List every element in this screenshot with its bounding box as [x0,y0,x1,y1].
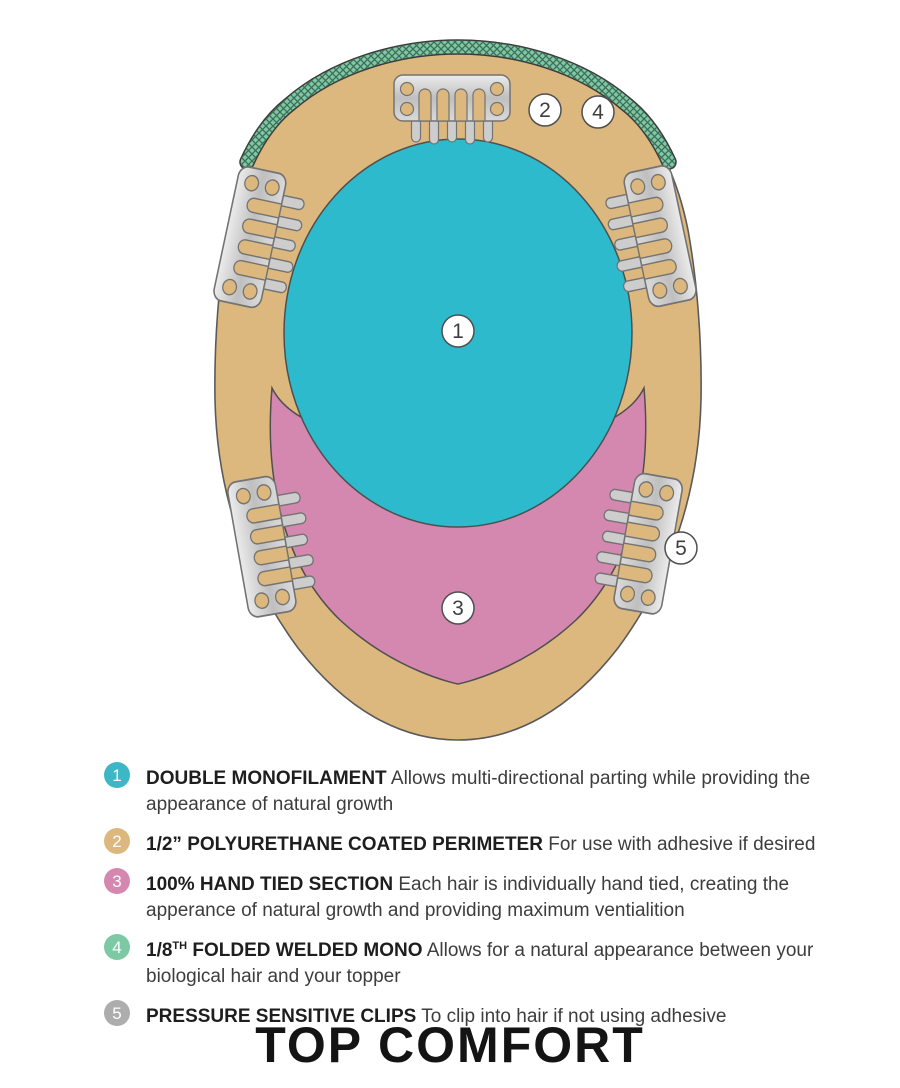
legend-text: 1/8TH FOLDED WELDED MONO Allows for a na… [146,933,844,990]
legend-label-continued: FOLDED WELDED MONO [187,940,422,961]
legend: 1 DOUBLE MONOFILAMENT Allows multi-direc… [104,761,844,1039]
marker-number: 5 [675,537,687,560]
legend-label: 100% HAND TIED SECTION [146,874,393,895]
marker-number: 2 [539,99,551,122]
legend-number-badge: 2 [104,828,130,854]
legend-number: 2 [112,833,121,850]
marker-1: 1 [442,315,474,347]
legend-item: 1 DOUBLE MONOFILAMENT Allows multi-direc… [104,761,844,818]
marker-number: 3 [452,597,464,620]
legend-item: 4 1/8TH FOLDED WELDED MONO Allows for a … [104,933,844,990]
marker-number: 1 [452,320,464,343]
legend-number-badge: 1 [104,762,130,788]
marker-4: 4 [582,96,614,128]
topper-construction-page: 1 2 3 4 5 1 DOUBLE MONOFILAMENT Allows m… [0,0,900,1088]
legend-text: DOUBLE MONOFILAMENT Allows multi-directi… [146,761,844,818]
legend-number: 3 [112,873,121,890]
topper-diagram: 1 2 3 4 5 [0,0,900,755]
clip-top [394,75,510,144]
legend-label: 1/2” POLYURETHANE COATED PERIMETER [146,834,543,855]
marker-5: 5 [665,532,697,564]
legend-number: 1 [112,767,121,784]
marker-number: 4 [592,101,604,124]
legend-item: 3 100% HAND TIED SECTION Each hair is in… [104,867,844,924]
legend-item: 2 1/2” POLYURETHANE COATED PERIMETER For… [104,827,844,858]
page-title: TOP COMFORT [0,1016,900,1074]
legend-description: For use with adhesive if desired [548,834,815,855]
legend-label: DOUBLE MONOFILAMENT [146,768,387,789]
legend-label: 1/8 [146,940,172,961]
legend-number-badge: 3 [104,868,130,894]
legend-text: 1/2” POLYURETHANE COATED PERIMETER For u… [146,827,815,858]
legend-number: 4 [112,939,121,956]
legend-label-superscript: TH [172,940,187,952]
marker-3: 3 [442,592,474,624]
legend-text: 100% HAND TIED SECTION Each hair is indi… [146,867,844,924]
marker-2: 2 [529,94,561,126]
legend-number-badge: 4 [104,934,130,960]
